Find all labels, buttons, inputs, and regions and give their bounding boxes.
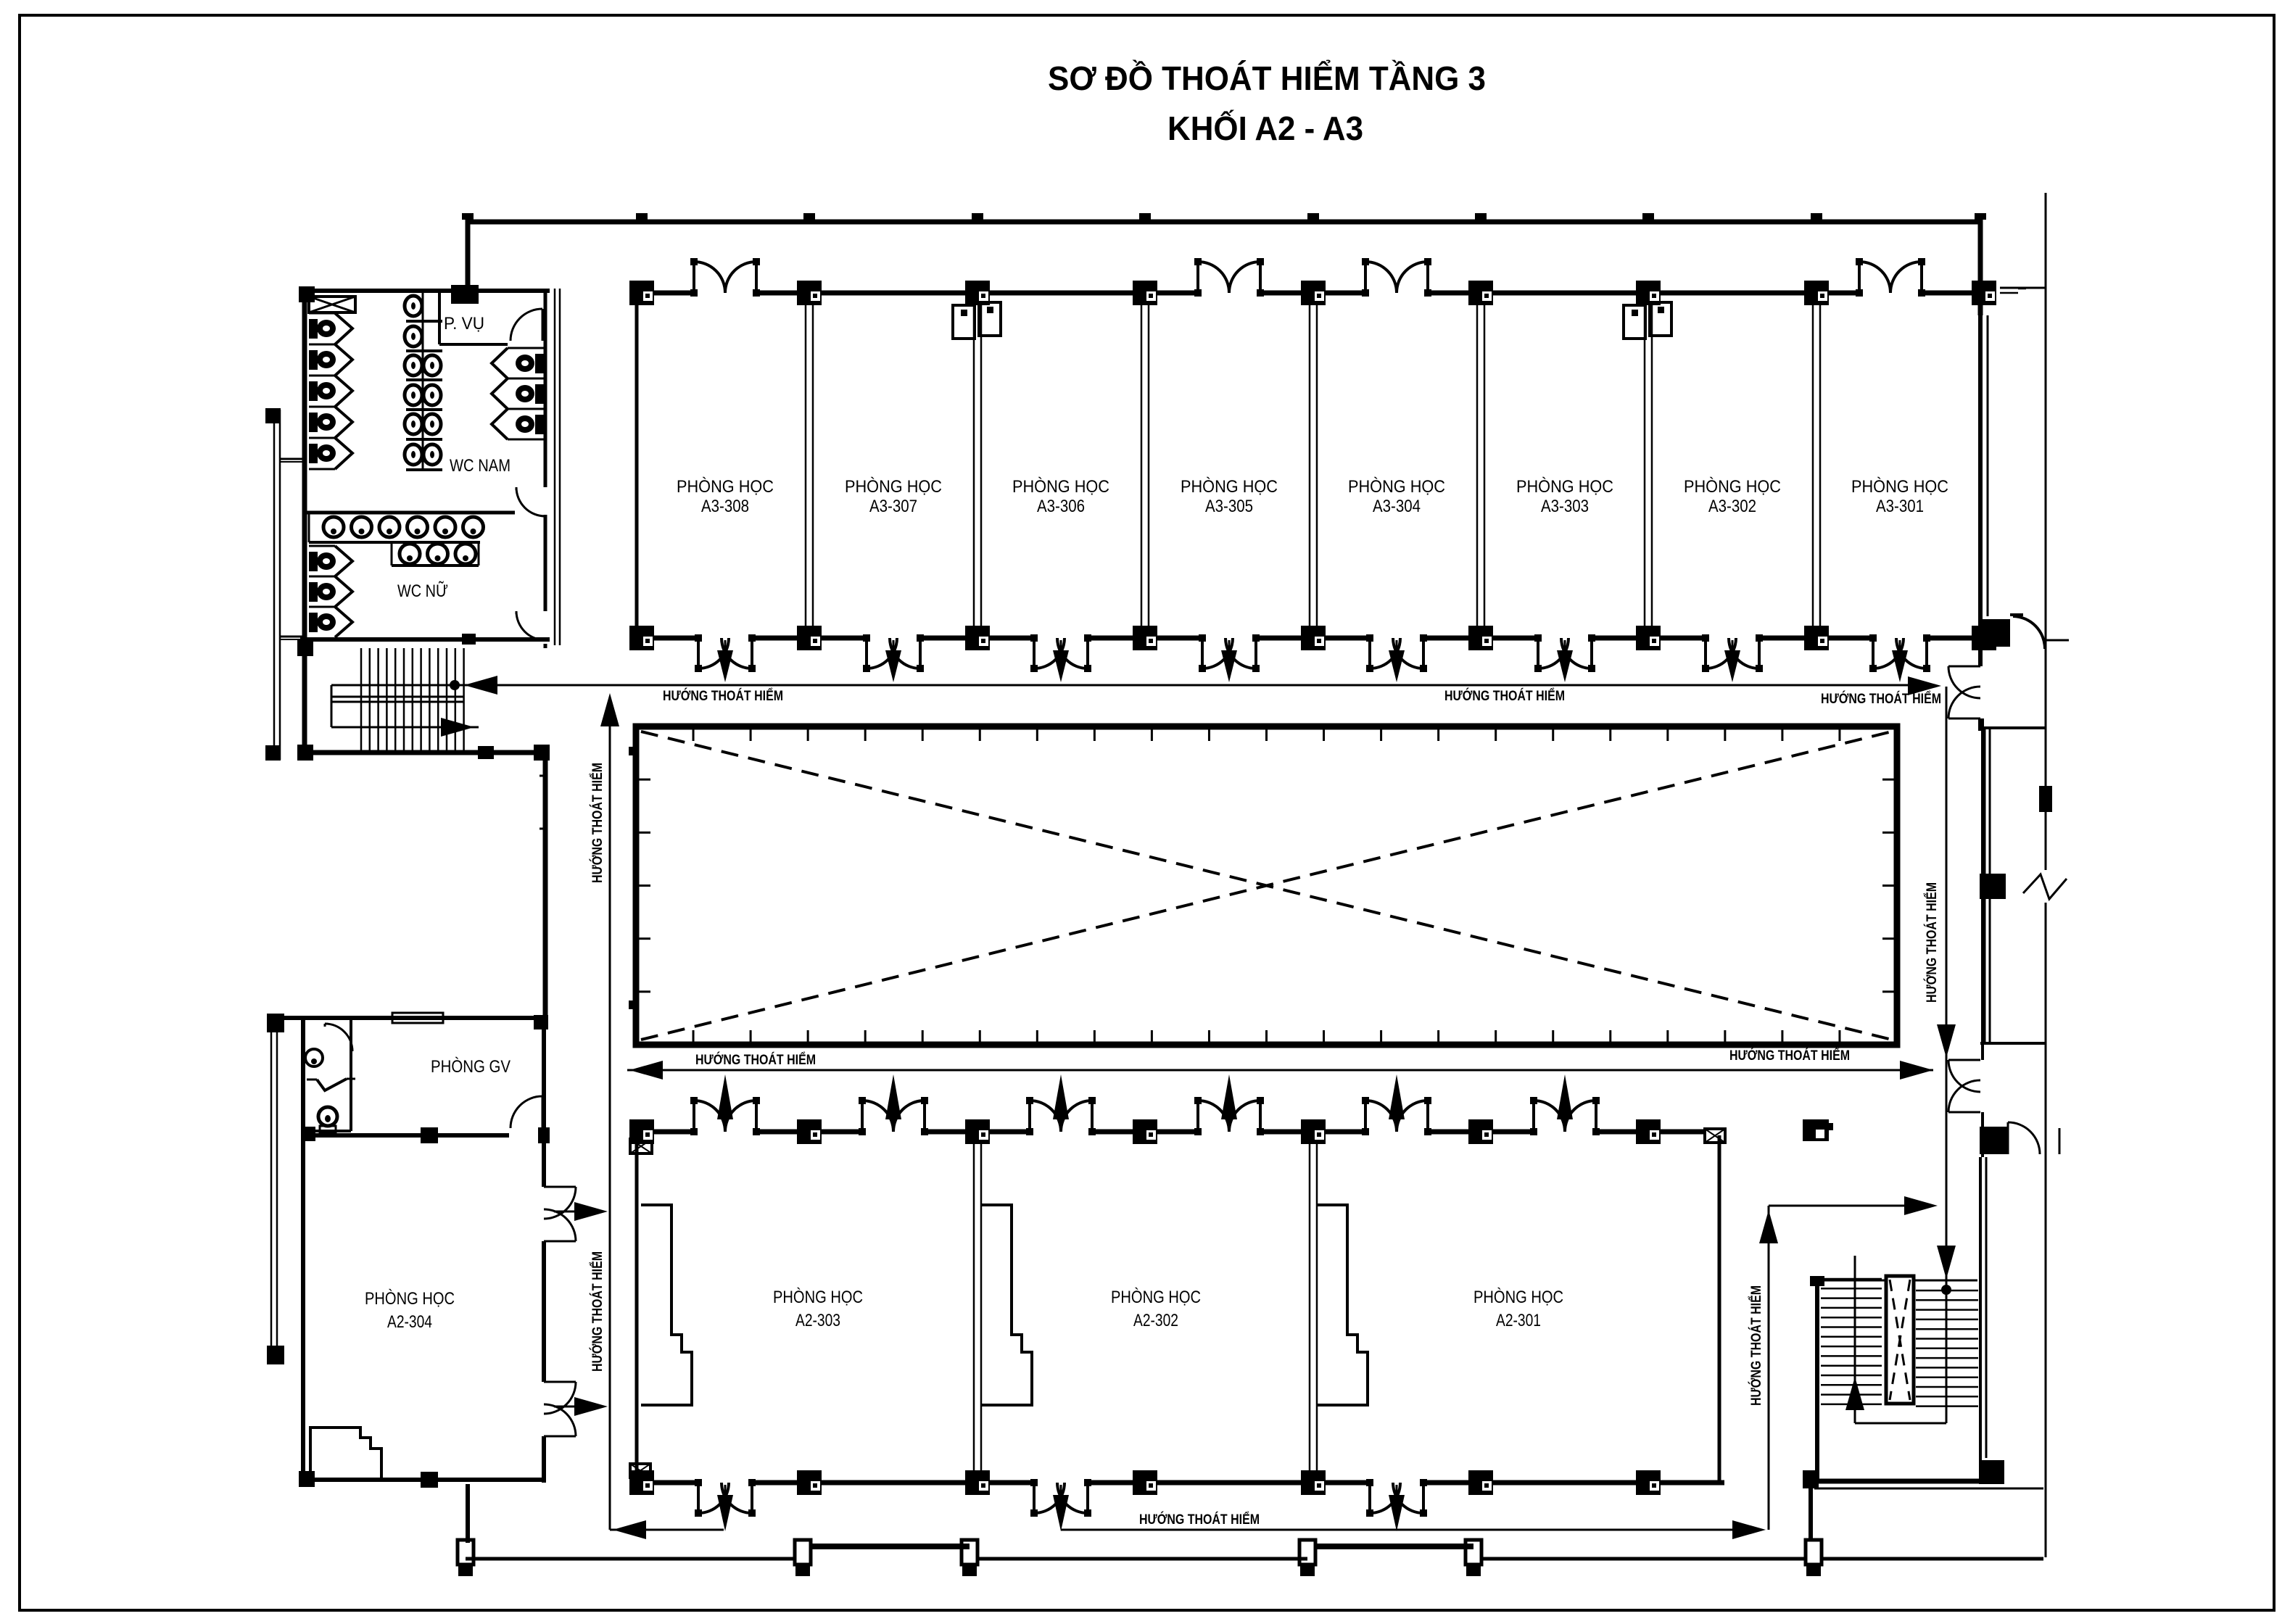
svg-text:PHÒNG HỌC: PHÒNG HỌC bbox=[1851, 477, 1948, 497]
svg-text:PHÒNG GV: PHÒNG GV bbox=[431, 1057, 511, 1077]
svg-text:PHÒNG HỌC: PHÒNG HỌC bbox=[1348, 477, 1445, 497]
svg-text:PHÒNG HỌC: PHÒNG HỌC bbox=[1111, 1288, 1201, 1307]
svg-text:A3-301: A3-301 bbox=[1876, 497, 1924, 516]
svg-text:A3-304: A3-304 bbox=[1373, 497, 1421, 516]
svg-text:P. VỤ: P. VỤ bbox=[444, 314, 484, 333]
svg-text:PHÒNG HỌC: PHÒNG HỌC bbox=[1516, 477, 1613, 497]
svg-text:SƠ ĐỒ THOÁT HIỂM TẦNG 3: SƠ ĐỒ THOÁT HIỂM TẦNG 3 bbox=[1048, 59, 1486, 97]
svg-text:HƯỚNG THOÁT HIỂM: HƯỚNG THOÁT HIỂM bbox=[1821, 691, 1941, 707]
svg-text:HƯỚNG THOÁT HIỂM: HƯỚNG THOÁT HIỂM bbox=[1924, 882, 1940, 1003]
svg-text:A3-305: A3-305 bbox=[1205, 497, 1253, 516]
svg-text:A3-306: A3-306 bbox=[1037, 497, 1085, 516]
svg-text:A3-303: A3-303 bbox=[1541, 497, 1589, 516]
svg-text:HƯỚNG THOÁT HIỂM: HƯỚNG THOÁT HIỂM bbox=[1748, 1285, 1764, 1406]
svg-text:PHÒNG HỌC: PHÒNG HỌC bbox=[1473, 1288, 1563, 1307]
svg-text:HƯỚNG THOÁT HIỂM: HƯỚNG THOÁT HIỂM bbox=[1444, 688, 1565, 704]
svg-text:A3-302: A3-302 bbox=[1708, 497, 1756, 516]
svg-text:PHÒNG HỌC: PHÒNG HỌC bbox=[1012, 477, 1109, 497]
svg-text:PHÒNG HỌC: PHÒNG HỌC bbox=[773, 1288, 863, 1307]
svg-text:A2-303: A2-303 bbox=[795, 1311, 840, 1330]
svg-text:HƯỚNG THOÁT HIỂM: HƯỚNG THOÁT HIỂM bbox=[695, 1052, 816, 1068]
svg-text:A2-302: A2-302 bbox=[1133, 1311, 1178, 1330]
svg-text:HƯỚNG THOÁT HIỂM: HƯỚNG THOÁT HIỂM bbox=[590, 1251, 605, 1372]
svg-text:PHÒNG HỌC: PHÒNG HỌC bbox=[845, 477, 942, 497]
svg-text:PHÒNG HỌC: PHÒNG HỌC bbox=[1684, 477, 1781, 497]
svg-text:A3-308: A3-308 bbox=[701, 497, 749, 516]
svg-text:KHỐI A2 - A3: KHỐI A2 - A3 bbox=[1167, 109, 1363, 147]
svg-text:A2-304: A2-304 bbox=[387, 1312, 432, 1332]
svg-text:A2-301: A2-301 bbox=[1496, 1311, 1541, 1330]
svg-text:HƯỚNG THOÁT HIỂM: HƯỚNG THOÁT HIỂM bbox=[663, 688, 783, 704]
svg-text:HƯỚNG THOÁT HIỂM: HƯỚNG THOÁT HIỂM bbox=[1729, 1048, 1850, 1064]
svg-text:PHÒNG HỌC: PHÒNG HỌC bbox=[677, 477, 774, 497]
svg-text:HƯỚNG THOÁT HIỂM: HƯỚNG THOÁT HIỂM bbox=[590, 763, 605, 883]
svg-text:PHÒNG HỌC: PHÒNG HỌC bbox=[1181, 477, 1278, 497]
svg-text:A3-307: A3-307 bbox=[869, 497, 917, 516]
svg-text:HƯỚNG THOÁT HIỂM: HƯỚNG THOÁT HIỂM bbox=[1139, 1512, 1260, 1528]
svg-text:WC NỮ: WC NỮ bbox=[397, 581, 448, 601]
svg-text:PHÒNG HỌC: PHÒNG HỌC bbox=[365, 1289, 455, 1309]
svg-text:WC NAM: WC NAM bbox=[450, 456, 511, 476]
